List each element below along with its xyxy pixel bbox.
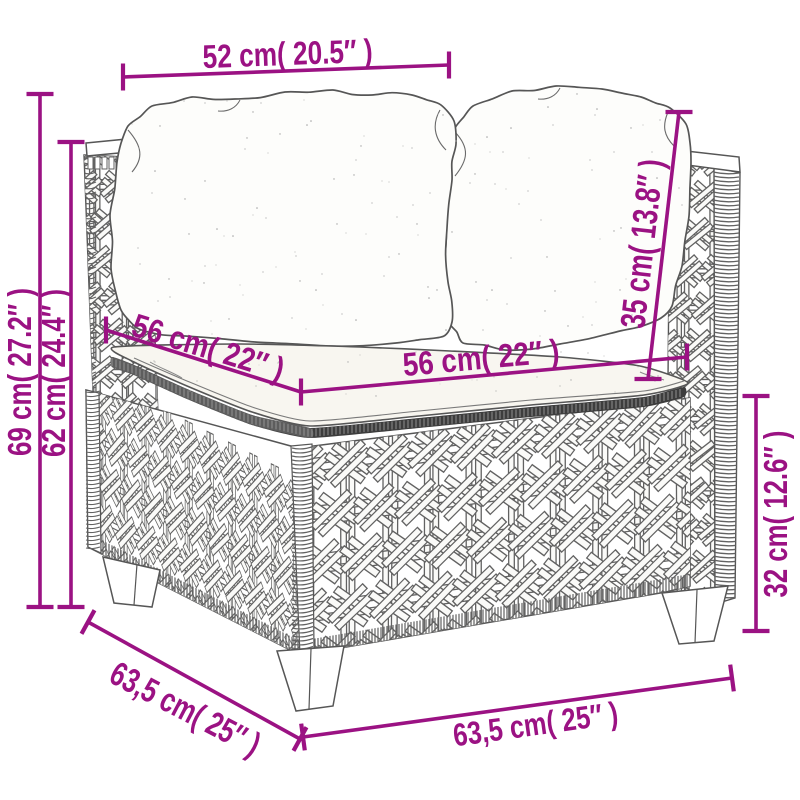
svg-text:52 cm( 20.5″ ): 52 cm( 20.5″ ) <box>202 32 373 75</box>
svg-text:62 cm( 24.4″ ): 62 cm( 24.4″ ) <box>35 289 72 457</box>
svg-text:69 cm( 27.2″ ): 69 cm( 27.2″ ) <box>1 288 38 456</box>
svg-text:32 cm( 12.6″ ): 32 cm( 12.6″ ) <box>757 431 794 598</box>
